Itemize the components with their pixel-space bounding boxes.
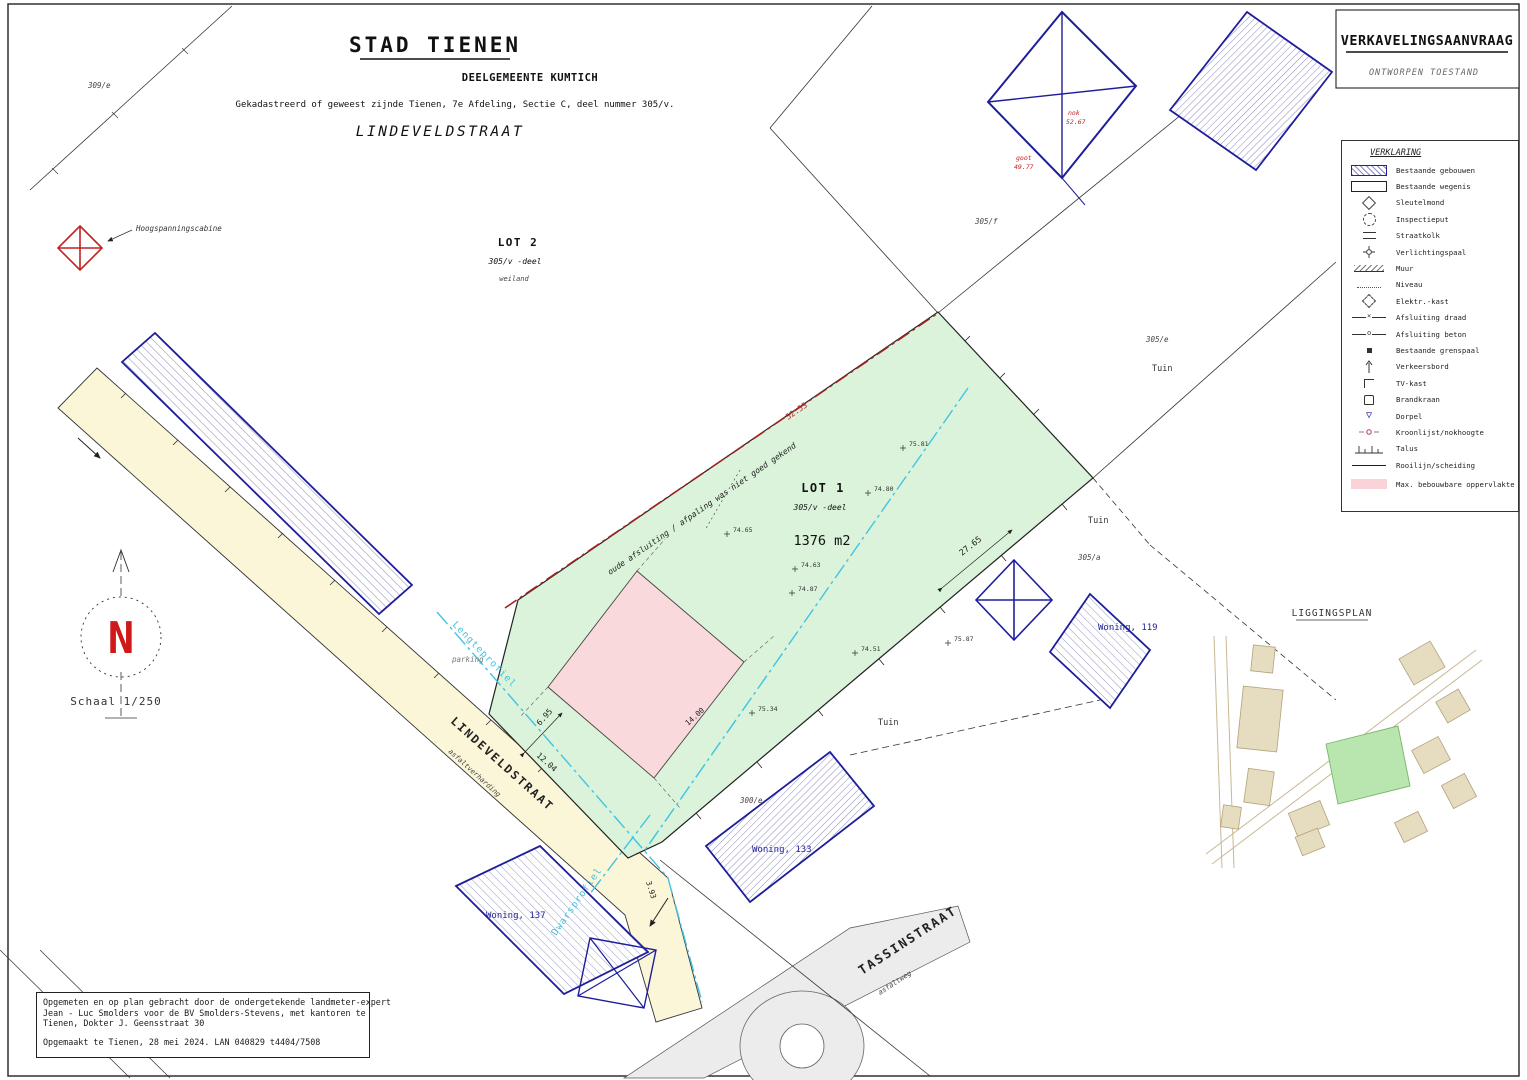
- lot2-note: weiland: [499, 275, 529, 283]
- legend-row: Niveau: [1342, 277, 1518, 293]
- inspectieput-icon: [1342, 213, 1396, 226]
- spot-8: 75.87: [954, 635, 974, 643]
- structure-x-frame: [976, 560, 1052, 640]
- elektr-kast-icon: [1342, 296, 1396, 306]
- tuin-label-2: Tuin: [878, 718, 898, 728]
- max-bebouwbaar-swatch: [1342, 479, 1396, 489]
- street-title: LINDEVELDSTRAAT: [356, 124, 524, 140]
- legend-row: Kroonlijst/nokhoogte: [1342, 424, 1518, 440]
- niveau-icon: [1342, 282, 1396, 288]
- woning137-label: Woning, 137: [486, 911, 546, 921]
- plan-drawing: N STAD TIENEN DEELGEMEENTE KUMTICH Gekad…: [0, 0, 1527, 1080]
- rooilijn-icon: [1342, 465, 1396, 466]
- lot2-name: LOT 2: [498, 236, 539, 249]
- liggingsplan-title: LIGGINGSPLAN: [1292, 608, 1373, 619]
- legend-row: Rooilijn/scheiding: [1342, 457, 1518, 473]
- parcel-309e: 309/e: [87, 81, 111, 90]
- spot-4: 74.51: [861, 645, 881, 653]
- legend-panel: VERKLARING Bestaande gebouwen Bestaande …: [1341, 140, 1519, 512]
- legend-row: TV-kast: [1342, 375, 1518, 391]
- municipality-label: DEELGEMEENTE KUMTICH: [462, 72, 598, 84]
- afsluiting-draad-icon: ×: [1342, 317, 1396, 318]
- muur-icon: [1342, 265, 1396, 272]
- hoogspanning-label: Hoogspanningscabine: [135, 224, 222, 233]
- straatkolk-icon: [1342, 232, 1396, 239]
- legend-row: o Afsluiting beton: [1342, 326, 1518, 342]
- parcel-300e: 300/e: [739, 796, 763, 805]
- survey-plan-sheet: N STAD TIENEN DEELGEMEENTE KUMTICH Gekad…: [0, 0, 1527, 1080]
- minimap-subject-parcel: [1326, 726, 1410, 804]
- kroonlijst-nokhoogte-icon: [1342, 426, 1396, 438]
- legend-title: VERKLARING: [1370, 148, 1518, 158]
- legend-row: Brandkraan: [1342, 391, 1518, 407]
- page-title: STAD TIENEN: [349, 33, 521, 57]
- legend-row: ▽ Dorpel: [1342, 408, 1518, 424]
- legend-row: Sleutelmond: [1342, 195, 1518, 211]
- brandkraan-icon: [1342, 395, 1396, 405]
- woning133-label: Woning, 133: [752, 845, 812, 855]
- dorpel-icon: ▽: [1342, 412, 1396, 420]
- surveyor-note-box: Opgemeten en op plan gebracht door de on…: [36, 992, 370, 1058]
- spot-7: 74.80: [874, 485, 894, 493]
- legend-row: Bestaande wegenis: [1342, 178, 1518, 194]
- spot-3: 74.87: [798, 585, 818, 593]
- tuin-label-3: Tuin: [1088, 516, 1108, 526]
- tv-kast-icon: [1342, 379, 1396, 388]
- surveyor-note-line: Opgemeten en op plan gebracht door de on…: [43, 997, 369, 1008]
- building-woning119: [1050, 594, 1150, 708]
- spot-2: 74.63: [801, 561, 821, 569]
- liggingsplan-minimap: LIGGINGSPLAN: [1206, 608, 1482, 868]
- talus-icon: [1342, 442, 1396, 455]
- verlichtingspaal-icon: [1342, 245, 1396, 259]
- legend-row: Verlichtingspaal: [1342, 244, 1518, 260]
- spot-1: 74.65: [733, 526, 753, 534]
- lot1-name: LOT 1: [801, 481, 845, 495]
- bestaande-wegenis-swatch: [1342, 181, 1396, 192]
- goot-value: 49.77: [1014, 163, 1034, 171]
- application-subtitle: ONTWORPEN TOESTAND: [1369, 68, 1479, 78]
- lot2-parcel: 305/v -deel: [488, 257, 542, 266]
- cadastral-label: Gekadastreerd of geweest zijnde Tienen, …: [236, 100, 675, 110]
- sleutelmond-icon: [1342, 198, 1396, 208]
- scale-text: Schaal 1/250: [70, 695, 161, 708]
- parking-label: parking: [452, 655, 484, 664]
- verkeersbord-icon: [1342, 359, 1396, 375]
- legend-row: Bestaande grenspaal: [1342, 342, 1518, 358]
- spot-6: 75.81: [909, 440, 929, 448]
- tuin-label-1: Tuin: [1152, 364, 1172, 374]
- legend-row: × Afsluiting draad: [1342, 310, 1518, 326]
- nok-value: 52.67: [1066, 118, 1086, 126]
- lot1-area: 1376 m2: [794, 533, 851, 549]
- nok-label: nok: [1068, 109, 1080, 117]
- legend-row: Inspectieput: [1342, 211, 1518, 227]
- legend-row: Muur: [1342, 260, 1518, 276]
- north-letter: N: [108, 613, 135, 664]
- goot-label: goot: [1016, 154, 1032, 162]
- bestaande-gebouwen-swatch: [1342, 165, 1396, 176]
- application-title: VERKAVELINGSAANVRAAG: [1341, 33, 1514, 49]
- hoogspanningscabine-symbol: [58, 226, 132, 270]
- spot-5: 75.34: [758, 705, 778, 713]
- scale-label: Schaal 1/250: [70, 695, 161, 708]
- parcel-305f: 305/f: [974, 217, 998, 226]
- legend-row: Elektr.-kast: [1342, 293, 1518, 309]
- building-diamond: [988, 12, 1136, 205]
- grenspaal-icon: [1342, 348, 1396, 353]
- legend-row: Bestaande gebouwen: [1342, 162, 1518, 178]
- north-arrow: N: [81, 550, 161, 718]
- surveyor-note-line: Opgemaakt te Tienen, 28 mei 2024. LAN 04…: [43, 1037, 369, 1048]
- surveyor-note-line: Tienen, Dokter J. Geensstraat 30: [43, 1018, 369, 1029]
- woning119-label: Woning, 119: [1098, 623, 1158, 633]
- parcel-305a: 305/a: [1077, 553, 1101, 562]
- lot1-parcel: 305/v -deel: [793, 503, 847, 512]
- legend-row: Talus: [1342, 441, 1518, 457]
- parcel-305e: 305/e: [1145, 335, 1169, 344]
- surveyor-note-line: Jean - Luc Smolders voor de BV Smolders-…: [43, 1008, 369, 1019]
- legend-row: Straatkolk: [1342, 228, 1518, 244]
- afsluiting-beton-icon: o: [1342, 334, 1396, 335]
- legend-row: Verkeersbord: [1342, 359, 1518, 375]
- building-topright: [1170, 12, 1332, 170]
- header-texts: STAD TIENEN DEELGEMEENTE KUMTICH Gekadas…: [236, 33, 675, 140]
- legend-row: Max. bebouwbare oppervlakte: [1342, 473, 1518, 495]
